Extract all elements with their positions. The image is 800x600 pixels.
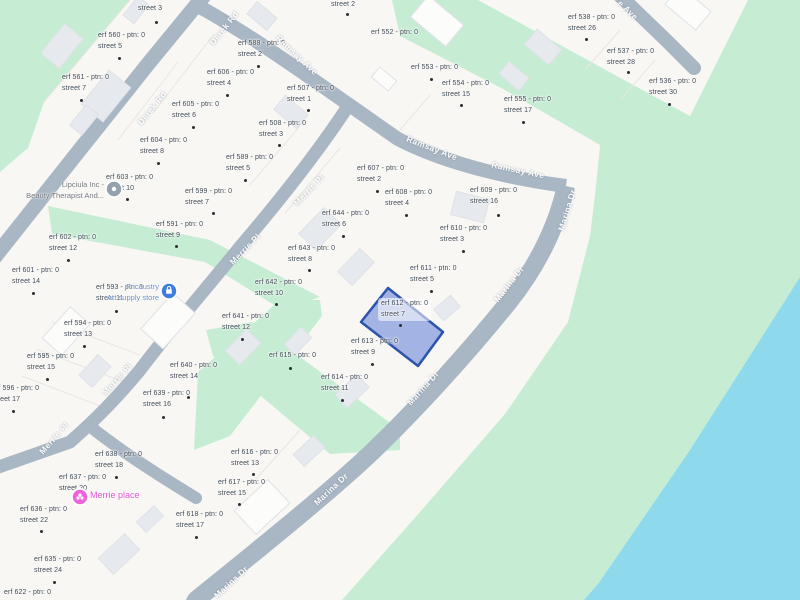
parcel-label: erf 611 - ptn: 0street 5 [410,264,457,285]
parcel-label: erf 538 - ptn: 0street 26 [568,13,615,34]
parcel-erf-text: erf 596 - ptn: 0 [0,384,39,395]
poi-text-line: Fricaustry [107,282,159,293]
parcel-marker-dot [157,162,160,165]
parcel-label: erf 508 - ptn: 0street 3 [259,119,306,140]
parcel-street-text: street 16 [470,197,517,208]
spa-icon[interactable] [103,178,125,200]
poi-text-line: Merrie place [90,490,140,501]
parcel-label: erf 561 - ptn: 0street 7 [62,73,109,94]
street-name-label: Merrie Pl [100,361,134,397]
parcel-marker-dot [252,473,255,476]
parcel-marker-dot [462,250,465,253]
street-name-label: Ramsay Ave [405,134,459,163]
parcel-marker-dot [115,310,118,313]
street-name-label: Marina Dr [312,471,350,508]
parcel-street-text: street 15 [442,90,489,101]
parcel-label: street 3 [138,4,162,15]
parcel-label: erf 601 - ptn: 0street 14 [12,266,59,287]
parcel-street-text: street 13 [231,459,278,470]
parcel-erf-text: erf 537 - ptn: 0 [607,47,654,58]
parcel-label: erf 635 - ptn: 0street 24 [34,555,81,576]
parcel-label: erf 610 - ptn: 0street 3 [440,224,487,245]
parcel-marker-dot [430,78,433,81]
parcel-marker-dot [399,324,402,327]
parcel-street-text: street 4 [207,79,254,90]
parcel-street-text: street 4 [385,199,432,210]
parcel-erf-text: erf 635 - ptn: 0 [34,555,81,566]
parcel-label: erf 617 - ptn: 0street 15 [218,478,265,499]
parcel-erf-text: erf 608 - ptn: 0 [385,188,432,199]
lipciula-label[interactable]: Lipciula Inc -Beauty Therapist And... [26,180,104,201]
parcel-erf-text: erf 561 - ptn: 0 [62,73,109,84]
parcel-erf-text: erf 554 - ptn: 0 [442,79,489,90]
parcel-label: erf 606 - ptn: 0street 4 [207,68,254,89]
parcel-marker-dot [257,65,260,68]
parcel-erf-text: erf 553 - ptn: 0 [411,63,458,74]
flower-icon[interactable] [69,486,91,508]
parcel-street-text: street 5 [226,164,273,175]
parcel-label: erf 537 - ptn: 0street 28 [607,47,654,68]
parcel-marker-dot [118,57,121,60]
parcel-label: erf 594 - ptn: 0street 13 [64,319,111,340]
parcel-marker-dot [241,338,244,341]
parcel-label: erf 636 - ptn: 0street 22 [20,505,67,526]
shopping-bag-icon[interactable] [158,280,180,302]
parcel-label: erf 605 - ptn: 0street 6 [172,100,219,121]
parcel-erf-text: erf 609 - ptn: 0 [470,186,517,197]
parcel-label: erf 616 - ptn: 0street 13 [231,448,278,469]
parcel-erf-text: erf 552 - ptn: 0 [371,28,418,39]
parcel-erf-text: erf 591 - ptn: 0 [156,220,203,231]
parcel-erf-text: erf 641 - ptn: 0 [222,312,269,323]
parcel-erf-text: erf 599 - ptn: 0 [185,187,232,198]
parcel-street-text: street 7 [381,310,428,321]
map-canvas[interactable]: street 3erf 560 - ptn: 0street 5erf 561 … [0,0,800,600]
parcel-street-text: street 26 [568,24,615,35]
parcel-marker-dot [46,378,49,381]
parcel-street-text: street 30 [649,88,696,99]
parcel-erf-text: erf 560 - ptn: 0 [98,31,145,42]
parcel-erf-text: erf 602 - ptn: 0 [49,233,96,244]
parcel-street-text: street 13 [64,330,111,341]
parcel-street-text: street 14 [12,277,59,288]
parcel-erf-text: erf 507 - ptn: 0 [287,84,334,95]
street-name-label: Derek Rd [135,89,168,127]
parcel-label: erf 639 - ptn: 0street 16 [143,389,190,410]
parcel-street-text: street 2 [238,50,285,61]
parcel-street-text: street 14 [170,372,217,383]
street-name-label: Derek Rd [207,9,240,47]
parcel-street-text: street 7 [62,84,109,95]
parcel-street-text: street 10 [255,289,302,300]
parcel-marker-dot [12,410,15,413]
parcel-label: street 2 [331,0,355,11]
parcel-label: erf 614 - ptn: 0street 11 [321,373,368,394]
parcel-street-text: street 17 [0,395,39,406]
parcel-label: erf 618 - ptn: 0street 17 [176,510,223,531]
parcel-label: erf 589 - ptn: 0street 5 [226,153,273,174]
parcel-label: erf 608 - ptn: 0street 4 [385,188,432,209]
parcel-erf-text: erf 637 - ptn: 0 [59,473,106,484]
parcel-erf-text: erf 644 - ptn: 0 [322,209,369,220]
parcel-erf-text: erf 615 - ptn: 0 [269,351,316,362]
parcel-marker-dot [627,71,630,74]
parcel-marker-dot [376,190,379,193]
parcel-marker-dot [307,109,310,112]
poi-text-line: Beauty Therapist And... [26,191,104,202]
parcel-street-text: street 9 [156,231,203,242]
parcel-erf-text: erf 538 - ptn: 0 [568,13,615,24]
map-labels-layer: street 3erf 560 - ptn: 0street 5erf 561 … [0,0,800,600]
street-name-label: Merrie Pl [37,420,71,456]
street-name-label: Marina Dr [212,564,250,600]
parcel-marker-dot [192,126,195,129]
parcel-label: erf 554 - ptn: 0street 15 [442,79,489,100]
parcel-marker-dot [226,94,229,97]
parcel-erf-text: erf 638 - ptn: 0 [95,450,142,461]
parcel-marker-dot [53,581,56,584]
parcel-erf-text: erf 589 - ptn: 0 [226,153,273,164]
parcel-street-text: street 5 [410,275,457,286]
parcel-marker-dot [308,269,311,272]
parcel-street-text: street 11 [321,384,368,395]
parcel-street-text: street 17 [176,521,223,532]
parcel-erf-text: erf 616 - ptn: 0 [231,448,278,459]
parcel-street-text: street 7 [185,198,232,209]
parcel-marker-dot [67,259,70,262]
parcel-street-text: street 8 [140,147,187,158]
parcel-label: erf 622 - ptn: 0 [4,588,51,599]
parcel-marker-dot [115,476,118,479]
parcel-erf-text: erf 640 - ptn: 0 [170,361,217,372]
parcel-label: erf 507 - ptn: 0street 1 [287,84,334,105]
parcel-erf-text: erf 606 - ptn: 0 [207,68,254,79]
parcel-erf-text: erf 555 - ptn: 0 [504,95,551,106]
parcel-street-text: street 12 [222,323,269,334]
parcel-street-text: street 3 [138,4,162,15]
parcel-street-text: street 17 [504,106,551,117]
parcel-marker-dot [371,363,374,366]
street-name-label: Marina Dr [556,188,578,232]
street-name-label: Marina Dr [492,264,526,304]
parcel-marker-dot [126,198,129,201]
parcel-street-text: street 15 [218,489,265,500]
parcel-erf-text: erf 636 - ptn: 0 [20,505,67,516]
parcel-label: erf 595 - ptn: 0street 15 [27,352,74,373]
parcel-marker-dot [278,144,281,147]
parcel-label: erf 602 - ptn: 0street 12 [49,233,96,254]
parcel-marker-dot [80,99,83,102]
parcel-street-text: street 3 [259,130,306,141]
parcel-marker-dot [238,503,241,506]
parcel-marker-dot [155,21,158,24]
parcel-marker-dot [405,214,408,217]
parcel-erf-text: erf 614 - ptn: 0 [321,373,368,384]
parcel-marker-dot [668,103,671,106]
parcel-erf-text: erf 617 - ptn: 0 [218,478,265,489]
parcel-label: erf 641 - ptn: 0street 12 [222,312,269,333]
parcel-street-text: street 22 [20,516,67,527]
parcel-marker-dot [162,416,165,419]
parcel-label: erf 591 - ptn: 0street 9 [156,220,203,241]
parcel-erf-text: erf 642 - ptn: 0 [255,278,302,289]
parcel-erf-text: erf 595 - ptn: 0 [27,352,74,363]
parcel-street-text: street 3 [440,235,487,246]
parcel-label: erf 613 - ptn: 0street 9 [351,337,398,358]
parcel-marker-dot [40,530,43,533]
parcel-street-text: street 15 [27,363,74,374]
parcel-street-text: street 2 [357,175,404,186]
parcel-marker-dot [289,367,292,370]
parcel-street-text: street 24 [34,566,81,577]
parcel-street-text: street 8 [288,255,335,266]
parcel-street-text: street 6 [322,220,369,231]
street-name-label: Ramsay Ave [491,160,546,181]
parcel-marker-dot [460,104,463,107]
parcel-street-text: street 6 [172,111,219,122]
parcel-erf-text: erf 612 - ptn: 0 [381,299,428,310]
parcel-marker-dot [585,38,588,41]
parcel-label: erf 552 - ptn: 0 [371,28,418,39]
parcel-marker-dot [430,290,433,293]
parcel-label: erf 536 - ptn: 0street 30 [649,77,696,98]
parcel-erf-text: erf 611 - ptn: 0 [410,264,457,275]
merrie-place-label[interactable]: Merrie place [90,490,140,501]
street-name-label: Merrie Pl [228,231,263,266]
parcel-marker-dot [341,399,344,402]
street-name-label: e Ave [616,0,640,22]
poi-text-line: Lipciula Inc - [26,180,104,191]
parcel-marker-dot [342,235,345,238]
parcel-marker-dot [195,536,198,539]
parcel-label: erf 560 - ptn: 0street 5 [98,31,145,52]
parcel-label: erf 607 - ptn: 0street 2 [357,164,404,185]
parcel-street-text: street 12 [49,244,96,255]
parcel-label: erf 644 - ptn: 0street 6 [322,209,369,230]
parcel-erf-text: erf 605 - ptn: 0 [172,100,219,111]
parcel-label: erf 642 - ptn: 0street 10 [255,278,302,299]
parcel-erf-text: erf 639 - ptn: 0 [143,389,190,400]
parcel-marker-dot [32,292,35,295]
parcel-marker-dot [522,121,525,124]
parcel-erf-text: erf 601 - ptn: 0 [12,266,59,277]
parcel-street-text: street 9 [351,348,398,359]
parcel-marker-dot [244,179,247,182]
parcel-marker-dot [212,212,215,215]
street-name-label: Merrie Pl [292,172,327,207]
parcel-erf-text: erf 622 - ptn: 0 [4,588,51,599]
parcel-erf-text: erf 610 - ptn: 0 [440,224,487,235]
parcel-street-text: street 16 [143,400,190,411]
parcel-erf-text: erf 594 - ptn: 0 [64,319,111,330]
parcel-erf-text: erf 607 - ptn: 0 [357,164,404,175]
parcel-street-text: street 1 [287,95,334,106]
parcel-erf-text: erf 508 - ptn: 0 [259,119,306,130]
parcel-street-text: street 18 [95,461,142,472]
parcel-street-text: street 5 [98,42,145,53]
parcel-erf-text: erf 643 - ptn: 0 [288,244,335,255]
parcel-erf-text: erf 618 - ptn: 0 [176,510,223,521]
parcel-marker-dot [497,214,500,217]
parcel-label: erf 599 - ptn: 0street 7 [185,187,232,208]
parcel-label: erf 615 - ptn: 0 [269,351,316,362]
parcel-label: erf 609 - ptn: 0street 16 [470,186,517,207]
street-name-label: Marina Dr [405,369,441,408]
parcel-street-text: street 28 [607,58,654,69]
parcel-erf-text: erf 536 - ptn: 0 [649,77,696,88]
parcel-label: erf 604 - ptn: 0street 8 [140,136,187,157]
parcel-erf-text: erf 613 - ptn: 0 [351,337,398,348]
parcel-label: erf 555 - ptn: 0street 17 [504,95,551,116]
parcel-label: erf 553 - ptn: 0 [411,63,458,74]
parcel-street-text: street 2 [331,0,355,11]
parcel-marker-dot [83,345,86,348]
parcel-erf-text: erf 604 - ptn: 0 [140,136,187,147]
parcel-label: erf 638 - ptn: 0street 18 [95,450,142,471]
parcel-label: erf 640 - ptn: 0street 14 [170,361,217,382]
parcel-label: erf 612 - ptn: 0street 7 [378,298,431,321]
poi-text-line: Art supply store [107,293,159,304]
parcel-label: erf 596 - ptn: 0street 17 [0,384,39,405]
parcel-marker-dot [275,303,278,306]
parcel-marker-dot [175,245,178,248]
parcel-marker-dot [346,13,349,16]
fricaustry-label[interactable]: FricaustryArt supply store [107,282,159,303]
parcel-label: erf 643 - ptn: 0street 8 [288,244,335,265]
